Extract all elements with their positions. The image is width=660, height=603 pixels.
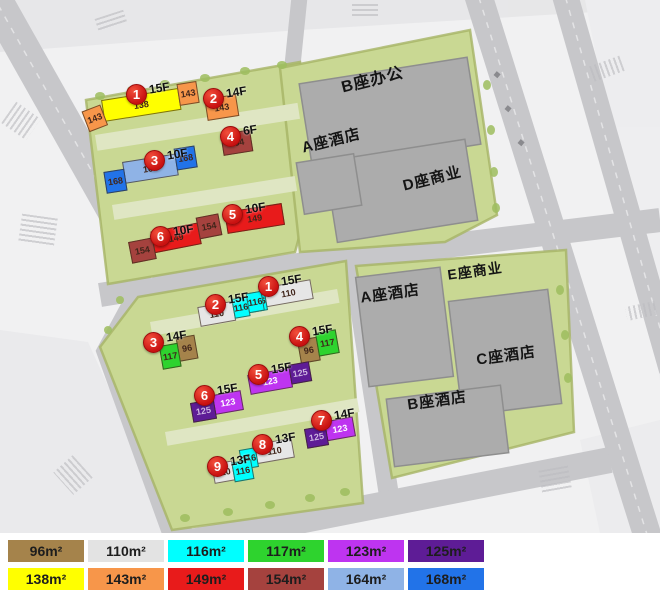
building-badge-lower-4: 415F	[289, 326, 333, 347]
legend-swatch-125: 125m²	[408, 540, 484, 562]
legend-swatch-164: 164m²	[328, 568, 404, 590]
legend-label: 123m²	[346, 543, 386, 559]
plot-annotation-block	[18, 214, 58, 247]
building-badge-lower-9: 913F	[207, 456, 251, 477]
plot-annotation-block	[352, 4, 378, 16]
legend-label: 96m²	[30, 543, 63, 559]
legend-swatch-117: 117m²	[248, 540, 324, 562]
area-legend: 96m² 110m² 116m² 117m² 123m² 125m² 138m²…	[0, 533, 660, 603]
building-floors: 15F	[216, 380, 239, 397]
legend-row-1: 96m² 110m² 116m² 117m² 123m² 125m²	[8, 540, 660, 562]
building-badge-lower-1: 115F	[258, 276, 302, 297]
legend-swatch-143: 143m²	[88, 568, 164, 590]
building-badge-lower-6: 615F	[194, 385, 238, 406]
building-badge-lower-2: 215F	[205, 294, 249, 315]
site-plan-screenshot: 143 138 143 143 168 164 168 154 149 154 …	[0, 0, 660, 603]
building-badge-upper-1: 115F	[126, 84, 170, 105]
building-floors: 10F	[166, 145, 189, 162]
building-number: 3	[144, 150, 165, 171]
building-floors: 13F	[229, 451, 252, 468]
unit-area-label: 154	[201, 220, 217, 232]
building-number: 2	[205, 294, 226, 315]
building-badge-lower-8: 813F	[252, 434, 296, 455]
legend-swatch-138: 138m²	[8, 568, 84, 590]
building-badge-upper-2: 214F	[203, 88, 247, 109]
legend-swatch-96: 96m²	[8, 540, 84, 562]
legend-label: 138m²	[26, 571, 66, 587]
legend-swatch-154: 154m²	[248, 568, 324, 590]
building-number: 1	[126, 84, 147, 105]
legend-label: 143m²	[106, 571, 146, 587]
building-floors: 14F	[225, 83, 248, 100]
unit-area-label: 125	[308, 431, 324, 442]
building-number: 1	[258, 276, 279, 297]
unit-area-label: 125	[195, 405, 211, 416]
building-badge-upper-6: 610F	[150, 226, 194, 247]
legend-swatch-110: 110m²	[88, 540, 164, 562]
legend-label: 168m²	[426, 571, 466, 587]
unit-area-label: 143	[180, 88, 196, 99]
legend-swatch-116: 116m²	[168, 540, 244, 562]
building-badge-lower-7: 714F	[311, 410, 355, 431]
building-number: 7	[311, 410, 332, 431]
building-number: 4	[289, 326, 310, 347]
legend-swatch-168: 168m²	[408, 568, 484, 590]
building-floors: 15F	[280, 271, 303, 288]
legend-label: 110m²	[106, 543, 146, 559]
building-number: 5	[222, 204, 243, 225]
building-floors: 14F	[165, 327, 188, 344]
legend-row-2: 138m² 143m² 149m² 154m² 164m² 168m²	[8, 568, 660, 590]
building-floors: 10F	[172, 221, 195, 238]
legend-swatch-149: 149m²	[168, 568, 244, 590]
legend-label: 117m²	[266, 543, 306, 559]
legend-label: 116m²	[186, 543, 226, 559]
building-floors: 6F	[242, 122, 258, 138]
building-floors: 15F	[270, 359, 293, 376]
building-floors: 13F	[274, 429, 297, 446]
building-badge-lower-3: 314F	[143, 332, 187, 353]
building-number: 3	[143, 332, 164, 353]
unit-area-label: 143	[86, 111, 103, 125]
unit-segment: 168	[103, 169, 127, 194]
building-floors: 15F	[311, 321, 334, 338]
unit-segment: 143	[176, 81, 199, 106]
legend-label: 154m²	[266, 571, 306, 587]
building-number: 9	[207, 456, 228, 477]
building-badge-upper-3: 310F	[144, 150, 188, 171]
unit-area-label: 154	[134, 245, 150, 257]
unit-area-label: 125	[292, 367, 308, 378]
building-number: 4	[220, 126, 241, 147]
legend-swatch-123: 123m²	[328, 540, 404, 562]
legend-label: 164m²	[346, 571, 386, 587]
base-map-svg	[0, 0, 660, 533]
legend-label: 125m²	[426, 543, 466, 559]
building-floors: 15F	[148, 79, 171, 96]
unit-area-label: 168	[107, 176, 123, 187]
unit-segment: 154	[196, 213, 223, 239]
site-plan-map: 143 138 143 143 168 164 168 154 149 154 …	[0, 0, 660, 533]
building-badge-upper-4: 46F	[220, 126, 257, 147]
building-number: 8	[252, 434, 273, 455]
building-number: 6	[194, 385, 215, 406]
building-number: 6	[150, 226, 171, 247]
building-floors: 10F	[244, 199, 267, 216]
building-badge-lower-5: 515F	[248, 364, 292, 385]
building-badge-upper-5: 510F	[222, 204, 266, 225]
legend-label: 149m²	[186, 571, 226, 587]
building-floors: 15F	[227, 289, 250, 306]
building-number: 2	[203, 88, 224, 109]
building-number: 5	[248, 364, 269, 385]
building-floors: 14F	[333, 405, 356, 422]
